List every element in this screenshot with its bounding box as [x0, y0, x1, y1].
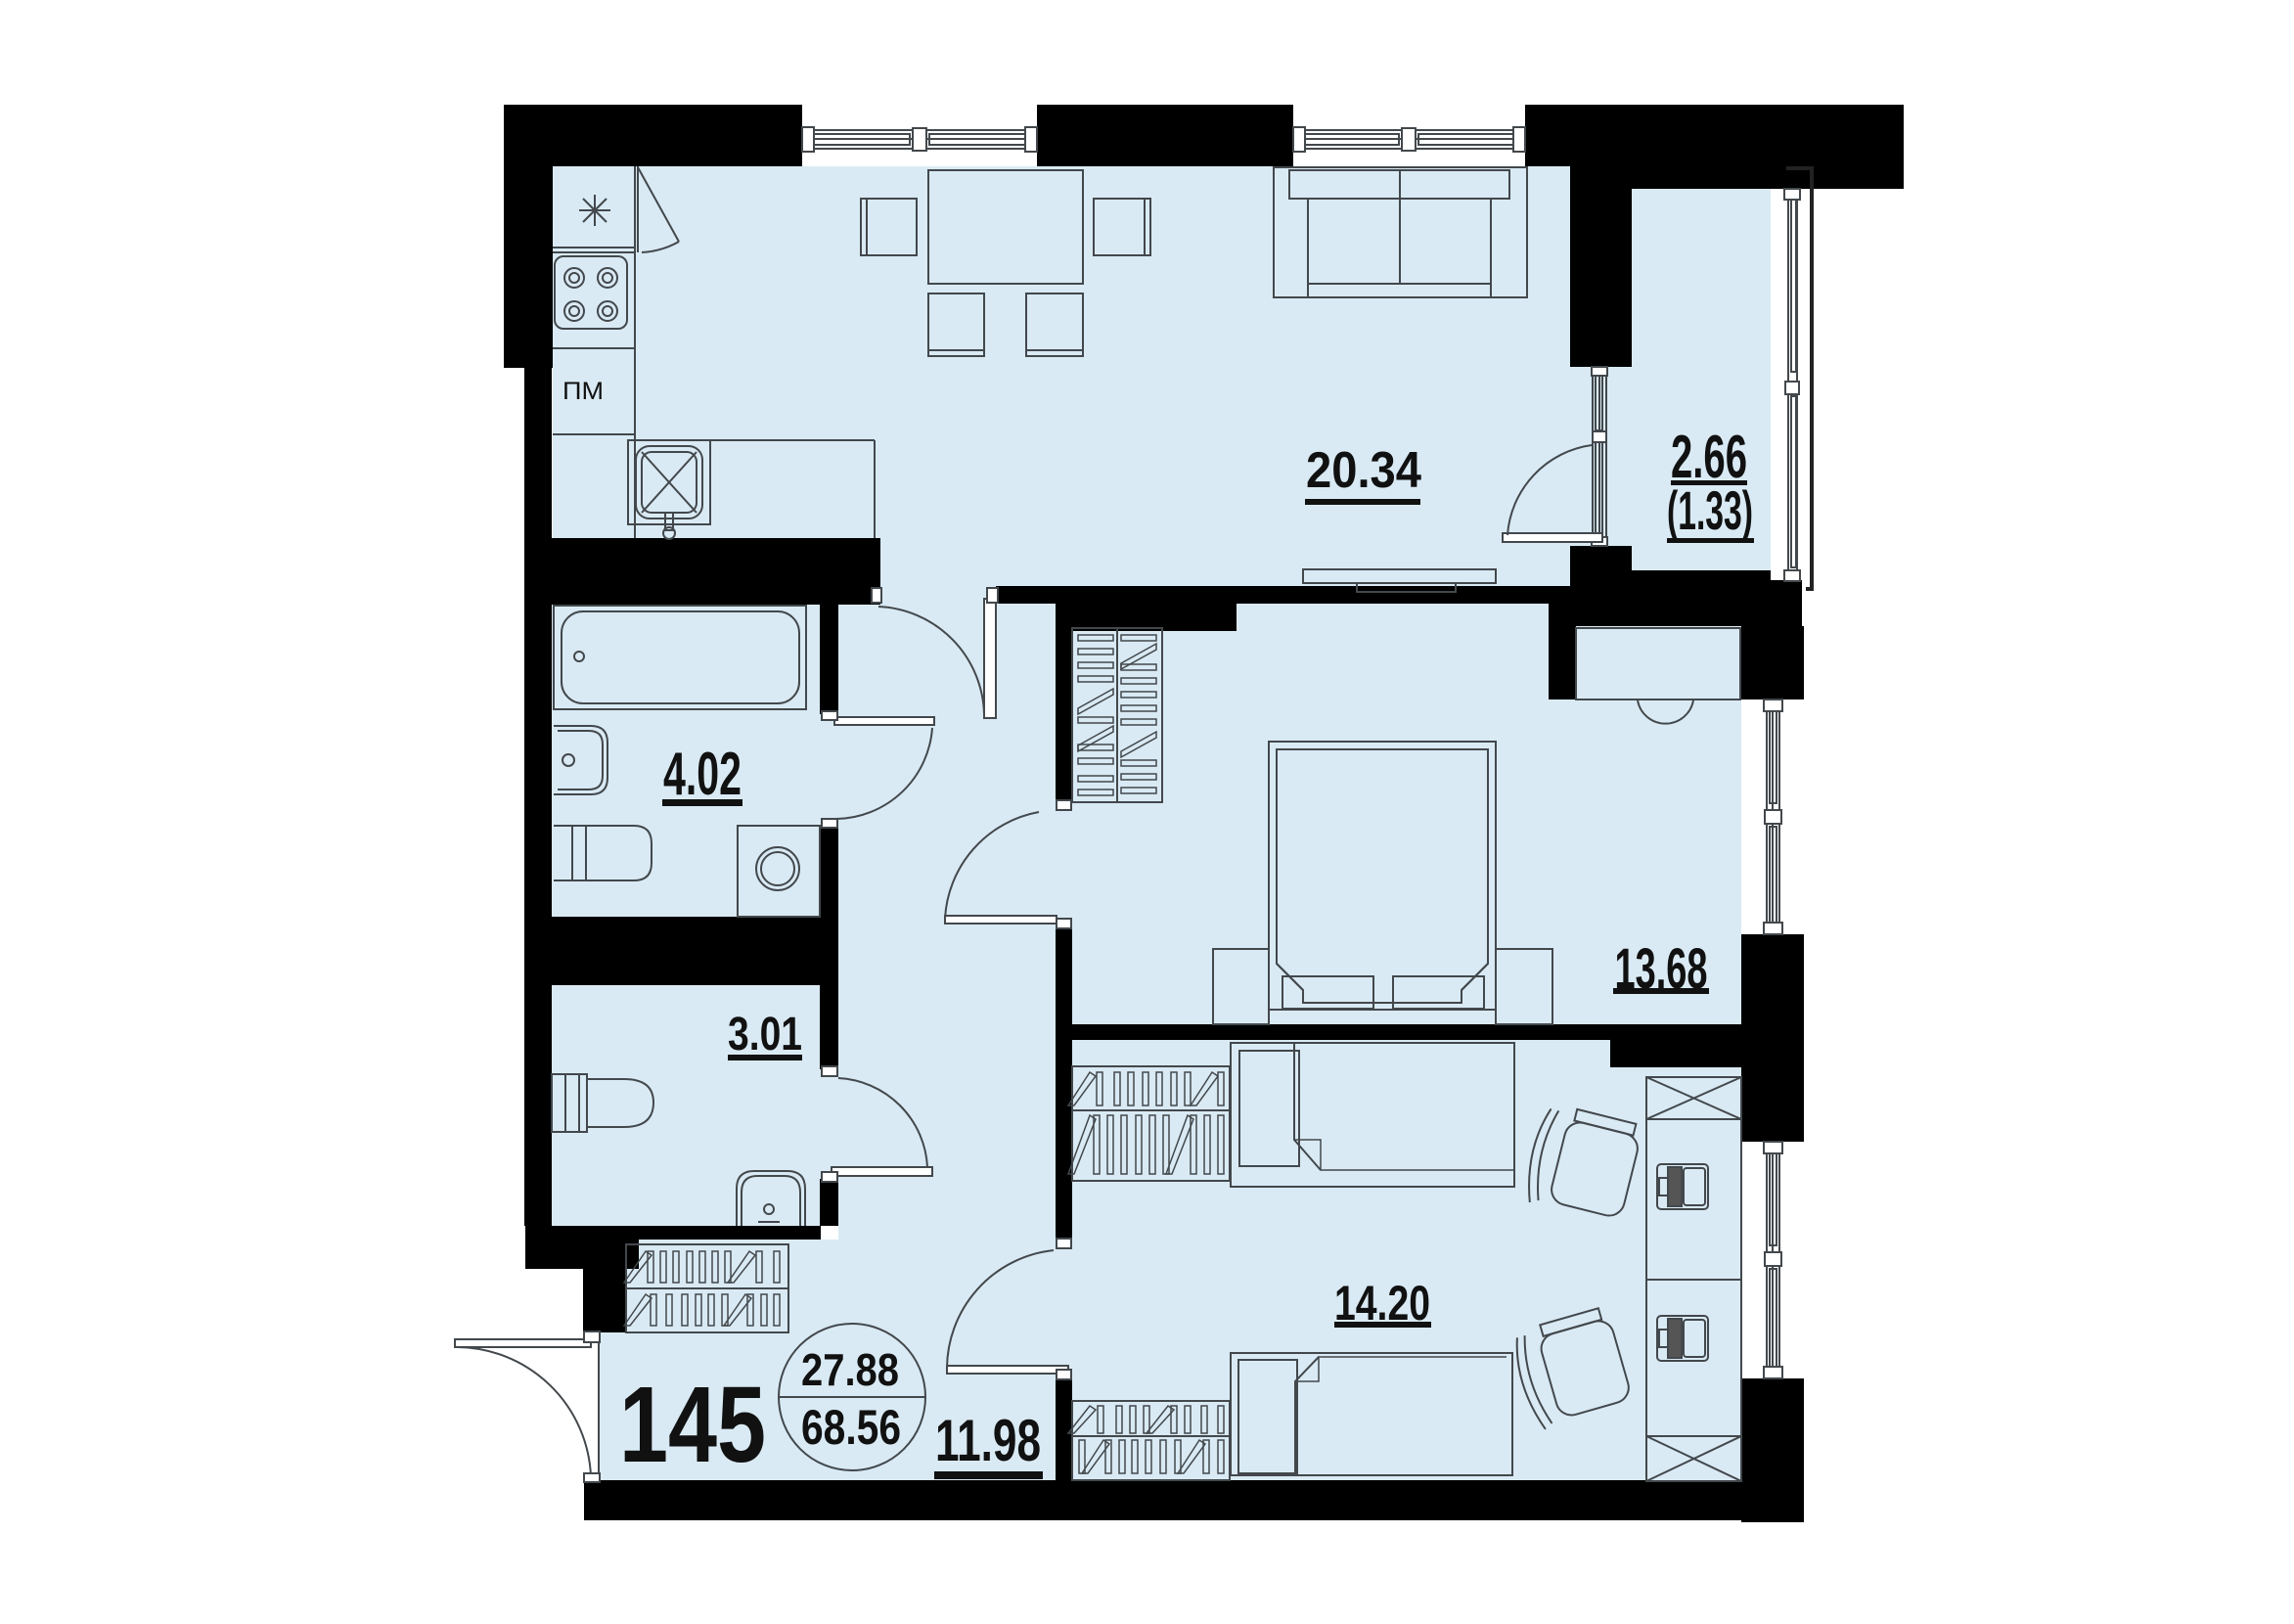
svg-text:145: 145: [619, 1365, 766, 1485]
svg-text:20.34: 20.34: [1306, 442, 1421, 499]
svg-text:11.98: 11.98: [935, 1408, 1041, 1473]
svg-text:68.56: 68.56: [801, 1400, 901, 1455]
svg-text:4.02: 4.02: [663, 741, 742, 808]
svg-text:27.88: 27.88: [801, 1344, 899, 1395]
svg-text:ПМ: ПМ: [562, 378, 604, 405]
svg-text:(1.33): (1.33): [1667, 479, 1753, 541]
svg-text:3.01: 3.01: [728, 1009, 802, 1060]
